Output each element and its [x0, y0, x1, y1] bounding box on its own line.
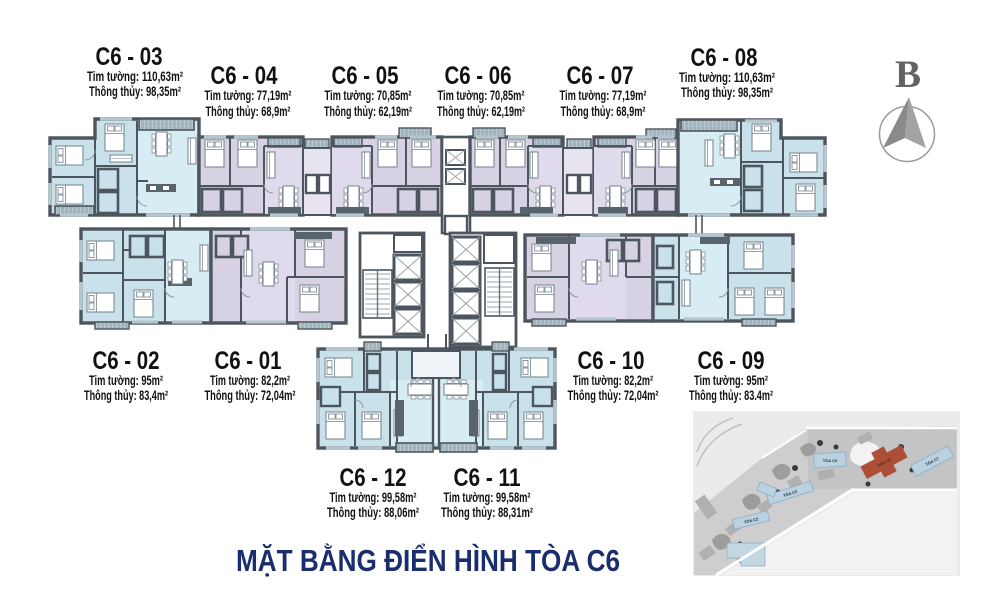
svg-text:C6 - 10: C6 - 10 — [578, 347, 645, 375]
svg-text:C6 - 07: C6 - 07 — [567, 62, 634, 90]
svg-text:Tim tường: 82,2m²: Tim tường: 82,2m² — [573, 373, 653, 388]
svg-text:Thông thủy: 68,9m²: Thông thủy: 68,9m² — [206, 104, 291, 119]
svg-text:Thông thủy: 98,35m²: Thông thủy: 98,35m² — [89, 84, 181, 99]
svg-text:B: B — [895, 53, 921, 96]
svg-text:Tim tường: 70,85m²: Tim tường: 70,85m² — [325, 88, 412, 103]
svg-text:Tim tường: 82,2m²: Tim tường: 82,2m² — [210, 373, 290, 388]
svg-text:Thông thủy: 72,04m²: Thông thủy: 72,04m² — [568, 388, 659, 403]
svg-text:Thông thủy: 83.4m²: Thông thủy: 83.4m² — [689, 388, 773, 403]
svg-text:TÒA C6: TÒA C6 — [823, 458, 838, 463]
svg-text:C6 - 05: C6 - 05 — [332, 62, 399, 90]
svg-text:Tim tường: 70,85m²: Tim tường: 70,85m² — [438, 88, 525, 103]
svg-text:Tim tường: 99,58m²: Tim tường: 99,58m² — [444, 490, 531, 505]
svg-text:Thông thủy: 72,04m²: Thông thủy: 72,04m² — [205, 388, 296, 403]
svg-text:Tim tường: 99,58m²: Tim tường: 99,58m² — [330, 490, 417, 505]
svg-text:Thông thủy: 62,19m²: Thông thủy: 62,19m² — [437, 104, 525, 119]
svg-text:C6 - 02: C6 - 02 — [93, 347, 160, 375]
svg-text:C6 - 08: C6 - 08 — [691, 44, 758, 72]
svg-text:Tim tường: 77,19m²: Tim tường: 77,19m² — [205, 88, 292, 103]
svg-text:C6 - 11: C6 - 11 — [454, 464, 521, 492]
svg-text:Tim tường: 95m²: Tim tường: 95m² — [694, 373, 768, 388]
svg-text:Thông thủy: 88,06m²: Thông thủy: 88,06m² — [327, 505, 419, 520]
svg-text:Thông thủy: 98,35m²: Thông thủy: 98,35m² — [681, 85, 773, 100]
svg-text:Thông thủy: 62,19m²: Thông thủy: 62,19m² — [324, 104, 412, 119]
svg-text:Thông thủy: 83,4m²: Thông thủy: 83,4m² — [84, 388, 168, 403]
svg-text:Tim tường: 95m²: Tim tường: 95m² — [89, 373, 163, 388]
svg-text:MẶT BẰNG ĐIỂN HÌNH TÒA C6: MẶT BẰNG ĐIỂN HÌNH TÒA C6 — [236, 542, 620, 578]
svg-text:Thông thủy: 88,31m²: Thông thủy: 88,31m² — [441, 505, 533, 520]
svg-text:Tim tường: 77,19m²: Tim tường: 77,19m² — [560, 88, 647, 103]
svg-text:C6 - 04: C6 - 04 — [211, 62, 278, 90]
svg-text:C6 - 01: C6 - 01 — [215, 347, 282, 375]
svg-text:C6 - 03: C6 - 03 — [96, 43, 163, 71]
svg-text:Tim tường: 110,63m²: Tim tường: 110,63m² — [87, 69, 183, 84]
svg-text:C6 - 09: C6 - 09 — [698, 347, 765, 375]
svg-text:Thông thủy: 68,9m²: Thông thủy: 68,9m² — [561, 104, 646, 119]
svg-text:Tim tường: 110,63m²: Tim tường: 110,63m² — [679, 70, 775, 85]
svg-text:C6 - 12: C6 - 12 — [340, 464, 407, 492]
svg-text:C6 - 06: C6 - 06 — [445, 62, 512, 90]
